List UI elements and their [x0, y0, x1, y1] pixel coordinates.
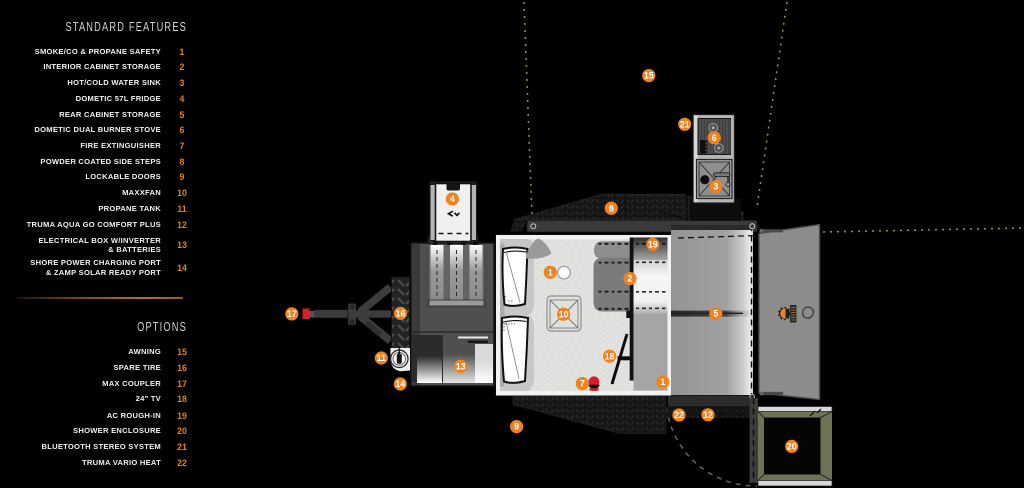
svg-text:11: 11	[377, 353, 386, 363]
svg-text:1: 1	[548, 267, 553, 277]
svg-text:10: 10	[559, 309, 569, 319]
svg-text:8: 8	[609, 203, 614, 213]
svg-text:3: 3	[713, 182, 718, 192]
svg-text:22: 22	[674, 410, 684, 420]
svg-text:4: 4	[450, 194, 455, 204]
svg-text:19: 19	[648, 239, 658, 249]
svg-text:5: 5	[713, 309, 718, 319]
svg-text:6: 6	[712, 133, 717, 143]
svg-text:16: 16	[396, 308, 406, 318]
svg-text:15: 15	[644, 71, 654, 81]
svg-text:13: 13	[456, 361, 466, 371]
svg-text:12: 12	[703, 410, 713, 420]
svg-text:7: 7	[580, 379, 585, 389]
svg-text:18: 18	[605, 351, 615, 361]
svg-text:2: 2	[628, 274, 633, 284]
svg-text:14: 14	[395, 379, 405, 389]
svg-text:1: 1	[660, 377, 665, 387]
svg-text:17: 17	[287, 309, 297, 319]
svg-text:21: 21	[680, 119, 690, 129]
svg-text:20: 20	[787, 442, 797, 452]
svg-text:9: 9	[514, 422, 519, 432]
